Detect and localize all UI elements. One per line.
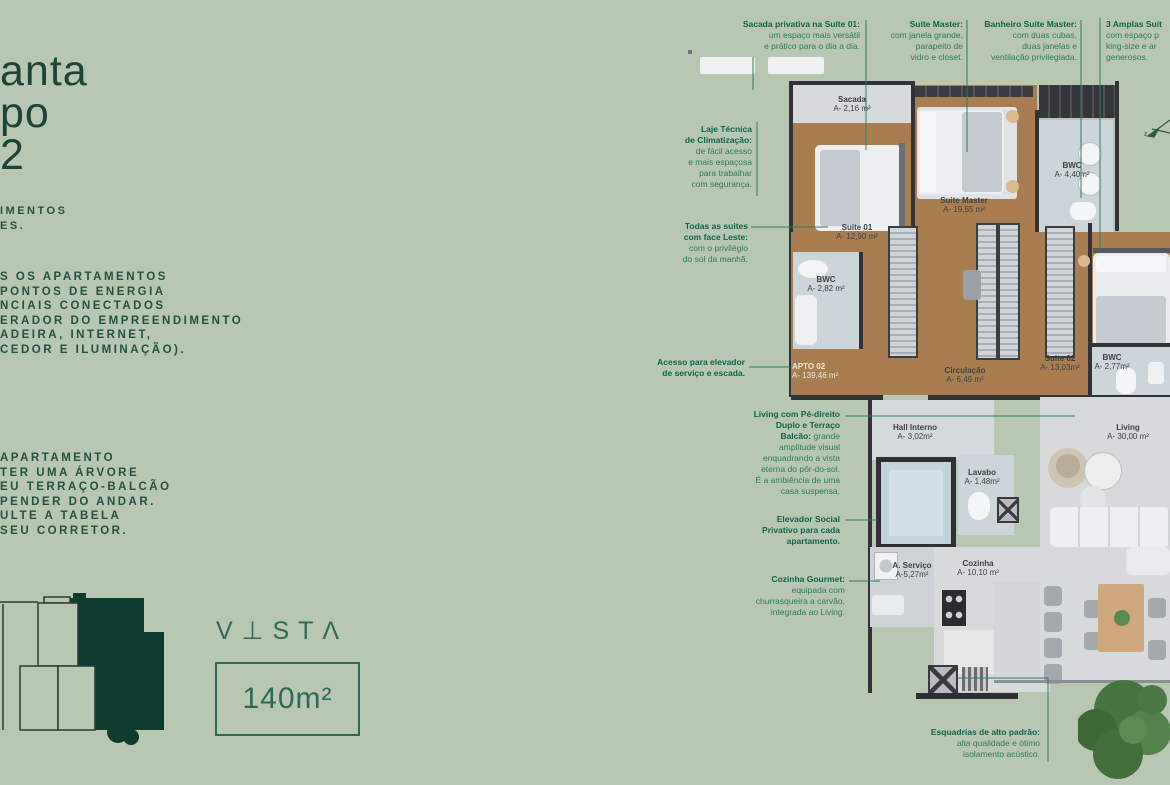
- room-label: CozinhaA- 10,10 m²: [957, 559, 999, 577]
- shaft-icon: [997, 497, 1019, 523]
- note-line: SEU CORRETOR.: [0, 525, 172, 540]
- room-label: A. ServiçoA-5,27m²: [892, 561, 931, 579]
- awning-slat: [768, 57, 824, 74]
- plant-icon: [1114, 610, 1130, 626]
- area-badge: 140m²: [215, 662, 360, 736]
- awning-slat: [700, 57, 755, 74]
- headboard: [899, 143, 905, 233]
- area-badge-value: 140m²: [242, 682, 332, 716]
- room-label: BWCA- 4,40m²: [1054, 161, 1089, 179]
- page: anta po 2 IMENTOS ES. S OS APARTAMENTOS …: [0, 0, 1170, 785]
- nightstand-icon: [1006, 110, 1019, 123]
- stairs-icon: [962, 667, 988, 691]
- annotation-cozinha-gourmet: Cozinha Gourmet: equipada com churrasque…: [705, 574, 845, 618]
- chair-icon: [1044, 586, 1062, 606]
- annotation-amplas-suites: 3 Amplas Suít com espaço p king-size e a…: [1106, 19, 1170, 63]
- wardrobe-icon: [998, 223, 1020, 360]
- chair-icon: [1148, 598, 1166, 618]
- nightstand-icon: [1078, 255, 1090, 267]
- subtitle-line: ES.: [0, 220, 67, 235]
- page-title-line: po: [0, 92, 88, 134]
- apto-label: APTO 02A- 139,46 m²: [792, 362, 838, 380]
- closet-icon: [1039, 85, 1115, 118]
- toilet-icon: [1116, 368, 1136, 394]
- page-title: anta po 2: [0, 50, 88, 176]
- room-label: BWCA- 2,77m²: [1094, 353, 1129, 371]
- stove-icon: [942, 590, 966, 626]
- note-line: TER UMA ÁRVORE: [0, 467, 172, 482]
- room-label: LavaboA- 1,48m²: [964, 468, 999, 486]
- annotation-banheiro-suite-master: Banheiro Suíte Master: com duas cubas, d…: [927, 19, 1077, 63]
- room-label: BWCA- 2,82 m²: [807, 275, 844, 293]
- note-line: PENDER DO ANDAR.: [0, 496, 172, 511]
- bed-pillows: [920, 112, 936, 192]
- wardrobe-icon: [1045, 226, 1075, 358]
- note-line: APARTAMENTO: [0, 452, 172, 467]
- room-label: LivingA- 30,00 m²: [1107, 423, 1149, 441]
- room-label: CirculaçãoA- 6,49 m²: [945, 366, 986, 384]
- tree-icon: [1078, 672, 1170, 785]
- toilet-icon: [968, 492, 990, 520]
- toilet-icon: [1070, 202, 1096, 220]
- note-line: ULTE A TABELA: [0, 510, 172, 525]
- room-label: Suite 01A- 12,90 m²: [836, 223, 878, 241]
- compass-icon: [1138, 106, 1170, 151]
- body-line: ERADOR DO EMPREENDIMENTO: [0, 315, 243, 330]
- elevator-social-icon: [876, 457, 956, 549]
- subtitle-fragment: IMENTOS ES.: [0, 205, 67, 234]
- bed-blanket: [962, 112, 1002, 192]
- wardrobe-icon: [888, 226, 918, 358]
- wall: [916, 693, 1018, 699]
- annotation-todas-suites: Todas as suites com face Leste: com o pr…: [618, 221, 748, 265]
- bed-blanket: [820, 150, 860, 226]
- bench-icon: [963, 270, 981, 300]
- sink-icon: [1148, 362, 1164, 384]
- annotation-elevador-social: Elevador Social Privativo para cada apar…: [715, 514, 840, 547]
- closet-icon: [915, 86, 1033, 97]
- sofa-icon: [1050, 507, 1170, 547]
- bed-blanket: [1096, 296, 1166, 344]
- armchair-cushion: [1056, 454, 1080, 478]
- elevator-cab: [889, 470, 943, 536]
- chair-icon: [1044, 638, 1062, 658]
- chair-icon: [1044, 612, 1062, 632]
- room-label: Suite MasterA- 19,55 m²: [940, 196, 988, 214]
- laundry-sink-icon: [872, 595, 904, 615]
- wall: [1115, 81, 1119, 231]
- body-line: PONTOS DE ENERGIA: [0, 286, 243, 301]
- room-label: SacadaA- 2,16 m²: [833, 95, 870, 113]
- round-table-icon: [1084, 452, 1122, 490]
- chair-icon: [1148, 640, 1166, 660]
- body-line: ADEIRA, INTERNET,: [0, 329, 243, 344]
- bathtub-icon: [795, 295, 817, 345]
- page-title-line: 2: [0, 134, 88, 176]
- body-line: NCIAIS CONECTADOS: [0, 300, 243, 315]
- sofa-chaise: [1126, 547, 1170, 575]
- annotation-laje-tecnica: Laje Técnica de Climatização: de fácil a…: [622, 124, 752, 190]
- body-line: CEDOR E ILUMINAÇÃO).: [0, 344, 243, 359]
- body-text-fragment: S OS APARTAMENTOS PONTOS DE ENERGIA NCIA…: [0, 271, 243, 359]
- vista-logo: V⊥STΛ: [216, 616, 348, 646]
- wall: [859, 252, 863, 349]
- subtitle-line: IMENTOS: [0, 205, 67, 220]
- nightstand-icon: [1006, 180, 1019, 193]
- body-line: S OS APARTAMENTOS: [0, 271, 243, 286]
- annotation-sacada-privativa: Sacada privativa na Suíte 01: um espaço …: [680, 19, 860, 52]
- bed-pillows: [1096, 256, 1166, 272]
- room-label: Suite 02A- 13,03m²: [1040, 354, 1080, 372]
- building-position-icon: [0, 588, 170, 758]
- annotation-living-pe-direito: Living com Pé-direito Duplo e Terraço Ba…: [705, 409, 840, 497]
- note-line: EU TERRAÇO-BALCÃO: [0, 481, 172, 496]
- note-text-fragment: APARTAMENTO TER UMA ÁRVORE EU TERRAÇO-BA…: [0, 452, 172, 540]
- room-label: Hall InternoA- 3,02m²: [893, 423, 937, 441]
- compass-letter: z: [1144, 131, 1148, 138]
- annotation-acesso-elevador: Acesso para elevador de serviço e escada…: [595, 357, 745, 379]
- service-elevator-icon: [928, 665, 958, 695]
- annotation-esquadrias: Esquadrias de alto padrão: alta qualidad…: [890, 727, 1040, 760]
- page-title-line: anta: [0, 50, 88, 92]
